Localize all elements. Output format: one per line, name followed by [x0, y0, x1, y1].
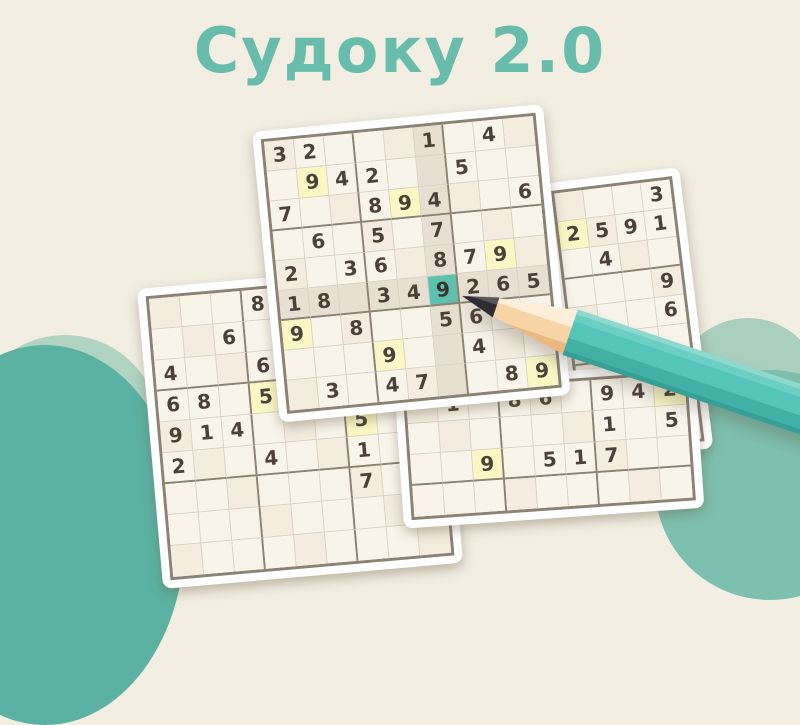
sudoku-cell: 8: [425, 244, 458, 277]
sudoku-cell: [294, 533, 328, 567]
sudoku-cell: [201, 541, 235, 575]
sudoku-cell: [416, 155, 449, 188]
sudoku-cell: 4: [419, 184, 452, 217]
sudoku-cell: 3: [335, 253, 368, 286]
sudoku-cell: [629, 469, 662, 502]
sudoku-cell: [320, 468, 354, 502]
sudoku-cell: 7: [406, 366, 439, 399]
sudoku-cell: [353, 496, 387, 530]
sudoku-cell: 4: [154, 358, 188, 392]
sudoku-cell: [325, 530, 359, 564]
sudoku-cell: 5: [362, 220, 395, 253]
sudoku-cell: [300, 196, 333, 229]
sudoku-cell: [612, 183, 644, 215]
sudoku-cell: [317, 437, 351, 471]
sudoku-cell: [263, 535, 297, 569]
sudoku-cell: [476, 149, 509, 182]
sudoku-cell: 4: [463, 331, 496, 364]
sudoku-cell: [565, 276, 597, 308]
sudoku-cell: [168, 512, 202, 546]
sudoku-cell: [443, 482, 476, 515]
game-title: Судоку 2.0: [0, 14, 800, 87]
sudoku-cell: [260, 504, 294, 538]
sudoku-cell: [452, 211, 485, 244]
sudoku-cell: [532, 413, 565, 446]
sudoku-cell: [412, 484, 445, 517]
sudoku-cell: 6: [365, 250, 398, 283]
sudoku-cell: 2: [162, 451, 196, 485]
sudoku-cell: [180, 294, 214, 328]
sudoku-cell: 9: [651, 266, 683, 298]
sudoku-cell: 6: [157, 389, 191, 423]
sudoku-cell: [622, 269, 654, 301]
sudoku-cell: 2: [356, 160, 389, 193]
sudoku-cell: [443, 122, 476, 155]
sudoku-cell: [479, 179, 512, 212]
sudoku-cell: 8: [341, 312, 374, 345]
sudoku-cell: 9: [389, 187, 422, 220]
sudoku-cell: 6: [655, 295, 687, 327]
sudoku-cell: 2: [276, 258, 309, 291]
sudoku-cell: [193, 448, 227, 482]
sudoku-cell: [505, 477, 538, 510]
selected-cell: 9: [428, 274, 461, 307]
sudoku-cell: [183, 324, 217, 358]
sudoku-cell: [395, 247, 428, 280]
sudoku-cell: 9: [526, 355, 559, 388]
sudoku-cell: [258, 473, 292, 507]
sudoku-cell: 9: [615, 212, 647, 244]
sudoku-cell: 1: [565, 442, 598, 475]
sudoku-cell: [344, 342, 377, 375]
sudoku-cell: [152, 327, 186, 361]
sudoku-cell: [356, 527, 390, 561]
sudoku-cell: [466, 361, 499, 394]
sudoku-grid-main: 3214942578946657236879183492659856943478…: [261, 113, 562, 414]
sudoku-cell: 4: [473, 119, 506, 152]
sudoku-cell: [626, 298, 658, 330]
sudoku-cell: [338, 283, 371, 316]
sudoku-cell: [199, 510, 233, 544]
sudoku-cell: [470, 418, 503, 451]
sudoku-cell: 1: [278, 288, 311, 321]
sudoku-cell: [305, 256, 338, 289]
sudoku-cell: [267, 169, 300, 202]
sudoku-cell: 1: [348, 434, 382, 468]
sudoku-cell: [196, 479, 230, 513]
sudoku-cell: [347, 372, 380, 405]
sudoku-cell: 1: [413, 125, 446, 158]
sudoku-cell: [506, 146, 539, 179]
sudoku-cell: [386, 157, 419, 190]
sudoku-cell: [503, 446, 536, 479]
sudoku-cell: [171, 543, 205, 577]
sudoku-cell: [273, 229, 306, 262]
sudoku-cell: 6: [509, 176, 542, 209]
sudoku-cell: [314, 345, 347, 378]
sudoku-cell: [563, 411, 596, 444]
sudoku-cell: 2: [294, 136, 327, 169]
sudoku-cell: [408, 422, 441, 455]
sudoku-cell: 5: [587, 215, 619, 247]
sudoku-cell: 2: [558, 219, 590, 251]
sudoku-sheet-main: 3214942578946657236879183492659856943478…: [252, 104, 571, 423]
sudoku-cell: 9: [374, 339, 407, 372]
sudoku-cell: [324, 133, 357, 166]
sudoku-cell: [401, 307, 434, 340]
sudoku-cell: [232, 538, 266, 572]
sudoku-cell: 1: [644, 208, 676, 240]
sudoku-cell: [165, 482, 199, 516]
sudoku-cell: [392, 217, 425, 250]
sudoku-cell: [291, 502, 325, 536]
sudoku-cell: [657, 436, 690, 469]
sudoku-cell: [474, 479, 507, 512]
sudoku-cell: [449, 181, 482, 214]
sudoku-cell: 4: [398, 277, 431, 310]
sudoku-cell: 6: [302, 226, 335, 259]
sudoku-cell: [624, 407, 657, 440]
sudoku-cell: 3: [641, 179, 673, 211]
sudoku-cell: 9: [472, 449, 505, 482]
sudoku-cell: [284, 348, 317, 381]
sudoku-cell: [287, 378, 320, 411]
sudoku-cell: [567, 473, 600, 506]
sudoku-splash: Судоку 2.0 864668591452417 32591496 1869…: [0, 0, 800, 470]
sudoku-cell: [311, 315, 344, 348]
sudoku-cell: 1: [593, 409, 626, 442]
sudoku-cell: [441, 451, 474, 484]
sudoku-cell: 4: [327, 163, 360, 196]
sudoku-cell: 9: [591, 378, 624, 411]
sudoku-cell: [439, 420, 472, 453]
sudoku-cell: [219, 384, 253, 418]
sudoku-cell: 7: [270, 199, 303, 232]
sudoku-cell: [536, 475, 569, 508]
sudoku-cell: 7: [596, 440, 629, 473]
sudoku-cell: [660, 467, 693, 500]
sudoku-cell: [619, 241, 651, 273]
sudoku-cell: [436, 364, 469, 397]
sudoku-cell: [648, 237, 680, 269]
sudoku-cell: 1: [191, 417, 225, 451]
sudoku-cell: [230, 507, 264, 541]
sudoku-cell: 4: [221, 414, 255, 448]
sudoku-cell: [433, 334, 466, 367]
sudoku-cell: [383, 128, 416, 161]
sudoku-cell: 9: [297, 166, 330, 199]
sudoku-cell: 3: [317, 375, 350, 408]
sudoku-cell: [583, 187, 615, 219]
sudoku-cell: 7: [422, 214, 455, 247]
sudoku-cell: [512, 206, 545, 239]
sudoku-cell: 8: [188, 386, 222, 420]
sudoku-cell: 5: [446, 152, 479, 185]
sudoku-cell: [354, 130, 387, 163]
sudoku-cell: [322, 499, 356, 533]
sudoku-cell: 9: [281, 318, 314, 351]
sudoku-cell: [561, 248, 593, 280]
sudoku-cell: [286, 440, 320, 474]
sudoku-cell: [211, 291, 245, 325]
sudoku-cell: 4: [255, 443, 289, 477]
sudoku-cell: 8: [359, 190, 392, 223]
sudoku-cell: [185, 355, 219, 389]
sudoku-cell: [482, 208, 515, 241]
sudoku-cell: [594, 273, 626, 305]
sudoku-cell: [387, 524, 421, 558]
sudoku-cell: [598, 471, 631, 504]
sudoku-cell: [514, 235, 547, 268]
sudoku-cell: 3: [368, 280, 401, 313]
sudoku-cell: [501, 415, 534, 448]
sudoku-cell: [224, 445, 258, 479]
sudoku-cell: 9: [485, 238, 518, 271]
sudoku-cell: [227, 476, 261, 510]
sudoku-cell: [332, 223, 365, 256]
sudoku-cell: [404, 337, 437, 370]
sudoku-cell: 4: [377, 369, 410, 402]
sudoku-cell: 4: [590, 244, 622, 276]
sudoku-cell: [554, 190, 586, 222]
sudoku-cell: [627, 438, 660, 471]
sudoku-cell: 8: [308, 285, 341, 318]
sudoku-cell: 6: [213, 322, 247, 356]
sudoku-cell: 7: [455, 241, 488, 274]
sudoku-cell: [329, 193, 362, 226]
sudoku-cell: [289, 471, 323, 505]
sudoku-cell: [149, 296, 183, 330]
sudoku-cell: 9: [160, 420, 194, 454]
sudoku-cell: [371, 310, 404, 343]
sudoku-cell: [410, 453, 443, 486]
sudoku-cell: 8: [496, 358, 529, 391]
sudoku-cell: 7: [350, 465, 384, 499]
sudoku-cell: [503, 116, 536, 149]
sudoku-cell: 5: [534, 444, 567, 477]
sudoku-cell: 5: [655, 405, 688, 438]
sudoku-cell: 3: [264, 139, 297, 172]
sudoku-cell: [216, 353, 250, 387]
